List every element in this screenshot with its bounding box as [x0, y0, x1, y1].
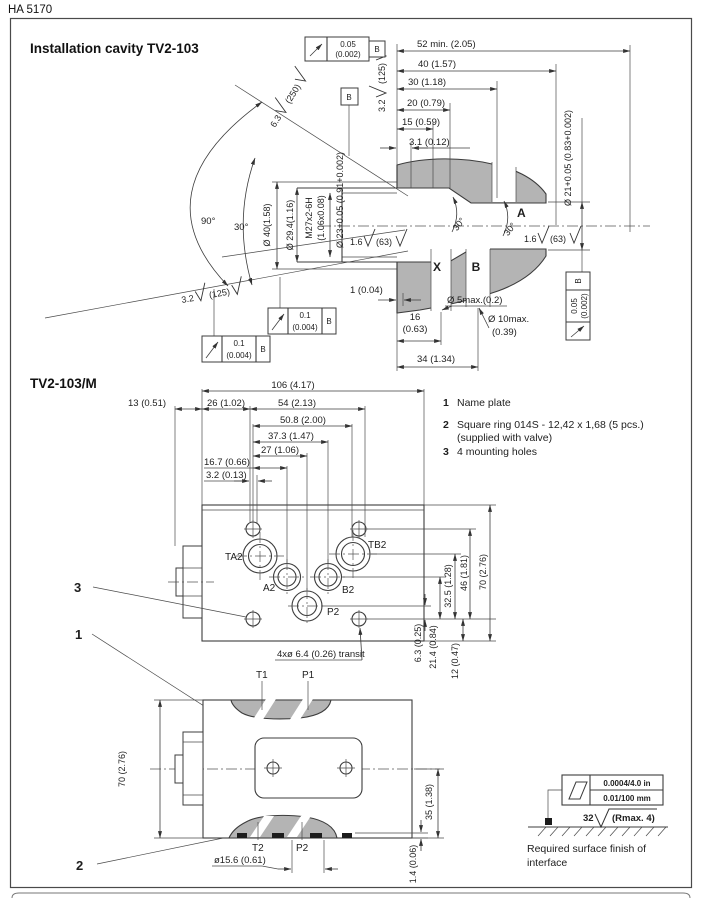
callout-3: 3	[74, 580, 81, 595]
name-plate	[255, 738, 362, 798]
dim-37-3: 37.3 (1.47)	[268, 431, 314, 442]
dim-dia15-6: ø15.6 (0.61)	[214, 855, 266, 866]
port-a2-label: A2	[263, 583, 276, 594]
svg-text:1.6: 1.6	[350, 237, 363, 247]
flatness-mm: 0.01/100 mm	[603, 794, 651, 803]
fcf-datum: B	[574, 278, 583, 283]
dim-54: 54 (2.13)	[278, 398, 316, 409]
dim-27: 27 (1.06)	[261, 445, 299, 456]
dim-thread: M27x2-6H	[304, 197, 314, 239]
port-b2-label: B2	[342, 585, 355, 596]
cavity-title: Installation cavity TV2-103	[30, 41, 199, 56]
legend-2-text2: (supplied with valve)	[457, 432, 552, 444]
valve-body-top	[202, 505, 424, 641]
svg-text:0.1: 0.1	[233, 339, 245, 348]
callout-2: 2	[76, 858, 83, 873]
dim-dia23: Ø 23+0.05 (0.91+0.002)	[335, 152, 345, 248]
dim-40: 40 (1.57)	[418, 59, 456, 70]
dim-dia29: Ø 29.4(1.16)	[285, 200, 295, 251]
finish-caption-1: Required surface finish of	[527, 843, 646, 855]
dim-21-4: 21.4 (0.84)	[428, 625, 438, 669]
svg-text:1.6: 1.6	[524, 234, 537, 244]
note-transit: 4xø 6.4 (0.26) transit	[277, 649, 365, 660]
dim-6-3: 6.3 (0.25)	[413, 624, 423, 663]
datasheet-page: HA 5170 Installation cavity TV2-103	[0, 0, 701, 898]
port-x-label: X	[433, 260, 441, 274]
svg-text:(63): (63)	[550, 234, 566, 244]
port-p2-label: P2	[296, 843, 309, 854]
dim-35: 35 (1.38)	[424, 784, 434, 820]
svg-text:0.1: 0.1	[299, 311, 311, 320]
angle-90: 90°	[201, 216, 216, 227]
dim-50-8: 50.8 (2.00)	[280, 415, 326, 426]
dim-16: 16	[410, 312, 421, 323]
angle-30: 30°	[234, 222, 249, 233]
roughness-note: (Rmax. 4)	[612, 813, 655, 824]
dim-dia21: Ø 21+0.05 (0.83+0.002)	[563, 110, 573, 206]
roughness-value: 32	[583, 813, 594, 824]
dim-70: 70 (2.76)	[478, 554, 488, 590]
svg-text:3.2: 3.2	[181, 293, 195, 305]
dim-3-1: 3.1 (0.12)	[409, 137, 450, 148]
port-a-bore	[492, 158, 516, 202]
dim-thread-in: (1.06x0.08)	[316, 195, 326, 241]
callout-1: 1	[75, 627, 82, 642]
svg-text:(0.002): (0.002)	[335, 50, 361, 59]
svg-text:(125): (125)	[377, 63, 387, 84]
port-ta2-label: TA2	[225, 552, 243, 563]
svg-text:B: B	[374, 45, 379, 54]
legend-1-num: 1	[443, 397, 449, 409]
finish-caption-2: interface	[527, 857, 567, 869]
dim-1-4: 1.4 (0.06)	[408, 845, 418, 884]
dim-70-front: 70 (2.76)	[117, 751, 127, 787]
dim-30: 30 (1.18)	[408, 77, 446, 88]
legend-3-text: 4 mounting holes	[457, 446, 537, 458]
port-t2-label: T2	[252, 843, 264, 854]
square-ring	[237, 833, 247, 838]
dim-46: 46 (1.81)	[459, 555, 469, 591]
dim-34: 34 (1.34)	[417, 354, 455, 365]
legend-2-num: 2	[443, 419, 449, 431]
legend-3-num: 3	[443, 446, 449, 458]
port-a-label: A	[517, 206, 526, 220]
svg-text:B: B	[260, 345, 265, 354]
dim-26: 26 (1.02)	[207, 398, 245, 409]
dim-16-in: (0.63)	[403, 324, 428, 335]
svg-text:B: B	[346, 93, 351, 102]
dim-dia10: Ø 10max.	[488, 314, 529, 325]
fcf-runout-right: B 0.05 (0.002)	[566, 272, 590, 340]
valve-title: TV2-103/M	[30, 376, 97, 391]
port-b-label: B	[472, 260, 481, 274]
fcf-tol: 0.05	[570, 298, 579, 314]
dim-dia10-in: (0.39)	[492, 327, 517, 338]
dim-dia5: Ø 5max.(0.2)	[447, 295, 502, 306]
legend-1-text: Name plate	[457, 397, 511, 409]
leader-foot	[545, 818, 552, 825]
dim-20: 20 (0.79)	[407, 98, 445, 109]
technical-drawing: HA 5170 Installation cavity TV2-103	[0, 0, 701, 898]
dim-dia40: Ø 40(1.58)	[262, 203, 272, 246]
square-ring	[342, 833, 352, 838]
dim-12: 12 (0.47)	[450, 643, 460, 679]
dim-13: 13 (0.51)	[128, 398, 166, 409]
svg-text:3.2: 3.2	[377, 99, 387, 112]
next-section-edge	[12, 893, 690, 898]
dim-16-7: 16.7 (0.66)	[204, 457, 250, 468]
dim-3-2: 3.2 (0.13)	[206, 470, 247, 481]
square-ring	[310, 833, 322, 838]
port-t1-label: T1	[256, 670, 268, 681]
fcf-runout-top: 0.05 (0.002) B	[305, 37, 385, 61]
port-tb2-label: TB2	[368, 540, 387, 551]
svg-text:B: B	[326, 317, 331, 326]
dim-15: 15 (0.59)	[402, 117, 440, 128]
dim-52: 52 min. (2.05)	[417, 39, 476, 50]
dim-1: 1 (0.04)	[350, 285, 383, 296]
square-ring	[272, 833, 284, 838]
svg-text:(63): (63)	[376, 237, 392, 247]
dim-32-5: 32.5 (1.28)	[443, 564, 453, 608]
fcf-tol-in: (0.002)	[580, 293, 589, 319]
svg-text:(0.004): (0.004)	[292, 323, 318, 332]
doc-number: HA 5170	[8, 4, 52, 16]
legend-2-text: Square ring 014S - 12,42 x 1,68 (5 pcs.)	[457, 419, 644, 431]
port-p1-label: P1	[302, 670, 315, 681]
port-p2-label: P2	[327, 607, 340, 618]
dim-106: 106 (4.17)	[271, 380, 314, 391]
svg-text:(0.004): (0.004)	[226, 351, 252, 360]
flatness-in: 0.0004/4.0 in	[603, 779, 650, 788]
svg-text:0.05: 0.05	[340, 40, 356, 49]
